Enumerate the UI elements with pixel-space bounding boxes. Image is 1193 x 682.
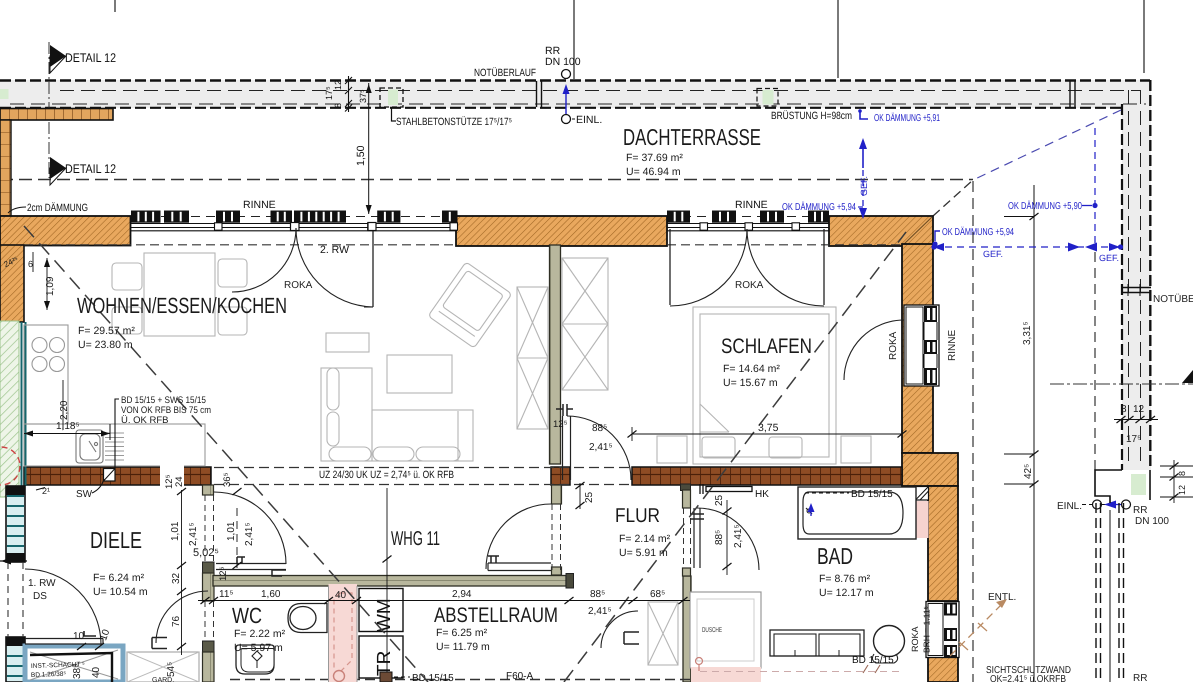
svg-text:F= 2.14 m²: F= 2.14 m² — [619, 533, 671, 545]
svg-text:76: 76 — [171, 615, 182, 627]
svg-text:8: 8 — [333, 103, 343, 108]
svg-text:WM: WM — [374, 598, 395, 632]
svg-text:BRH = 1.11⁵: BRH = 1.11⁵ — [922, 606, 932, 653]
svg-text:12⁵: 12⁵ — [553, 419, 568, 430]
svg-text:F= 29.57 m²: F= 29.57 m² — [78, 325, 135, 337]
svg-text:SCHLAFEN: SCHLAFEN — [721, 335, 812, 358]
svg-text:RINNE: RINNE — [947, 330, 958, 361]
svg-text:40: 40 — [335, 590, 347, 601]
svg-text:WHG 11: WHG 11 — [391, 528, 440, 550]
svg-text:BD 15/15: BD 15/15 — [852, 655, 894, 666]
svg-text:BD 1.26/38⁵: BD 1.26/38⁵ — [31, 671, 67, 679]
svg-text:OK DÄMMUNG +5,94: OK DÄMMUNG +5,94 — [942, 226, 1014, 238]
svg-text:ROKA: ROKA — [735, 280, 764, 291]
svg-text:1,01: 1,01 — [226, 521, 237, 541]
svg-text:F= 6.25 m²: F= 6.25 m² — [436, 627, 488, 639]
svg-text:STAHLBETONSTÜTZE 17⁵/17⁵: STAHLBETONSTÜTZE 17⁵/17⁵ — [396, 116, 512, 128]
svg-text:OK DÄMMUNG +5,90: OK DÄMMUNG +5,90 — [1008, 200, 1082, 212]
svg-text:6: 6 — [28, 259, 33, 269]
svg-text:1,18⁵: 1,18⁵ — [56, 421, 80, 432]
svg-text:HK: HK — [755, 489, 769, 500]
svg-text:25: 25 — [584, 491, 595, 503]
svg-text:U= 5.91 m: U= 5.91 m — [619, 547, 668, 559]
svg-text:DACHTERRASSE: DACHTERRASSE — [623, 124, 761, 150]
svg-text:DS: DS — [33, 591, 47, 602]
svg-text:DUSCHE: DUSCHE — [702, 627, 722, 634]
svg-text:68⁵: 68⁵ — [650, 589, 665, 600]
svg-text:DETAIL 12: DETAIL 12 — [65, 51, 116, 65]
svg-text:GEF.: GEF. — [983, 249, 1003, 259]
svg-text:Ü. OK RFB: Ü. OK RFB — [121, 415, 169, 426]
svg-text:UZ 24/30 UK UZ = 2,74⁵ ü. OK: UZ 24/30 UK UZ = 2,74⁵ ü. OK RFB — [319, 469, 454, 481]
svg-text:88⁵: 88⁵ — [592, 423, 607, 434]
svg-text:17⁵: 17⁵ — [324, 86, 334, 100]
svg-text:11⁵: 11⁵ — [219, 589, 234, 600]
svg-text:88⁵: 88⁵ — [714, 530, 725, 545]
svg-text:12⁵: 12⁵ — [218, 566, 229, 581]
svg-text:OK=2,41⁵ ü.OKRFB: OK=2,41⁵ ü.OKRFB — [990, 674, 1066, 682]
svg-text:12: 12 — [1177, 485, 1187, 495]
svg-text:F60-A: F60-A — [506, 671, 534, 682]
svg-text:12: 12 — [1133, 404, 1145, 415]
svg-text:1,09: 1,09 — [45, 276, 56, 296]
svg-text:DN 100: DN 100 — [545, 56, 581, 68]
svg-text:DN 100: DN 100 — [1135, 516, 1169, 527]
svg-text:8: 8 — [1121, 404, 1127, 415]
svg-text:3,31⁵: 3,31⁵ — [1022, 321, 1033, 345]
svg-text:37⁵: 37⁵ — [358, 89, 368, 103]
svg-text:RINNE: RINNE — [735, 199, 768, 211]
svg-text:U= 12.17 m: U= 12.17 m — [819, 587, 874, 599]
svg-text:10: 10 — [73, 631, 85, 642]
svg-text:U= 5.97 m: U= 5.97 m — [234, 642, 283, 654]
svg-text:1,01: 1,01 — [170, 521, 181, 541]
svg-text:F= 2.22 m²: F= 2.22 m² — [234, 628, 286, 640]
svg-text:WOHNEN/ESSEN/KOCHEN: WOHNEN/ESSEN/KOCHEN — [77, 293, 287, 318]
svg-text:ABSTELLRAUM: ABSTELLRAUM — [434, 604, 558, 627]
svg-text:12: 12 — [333, 80, 343, 90]
svg-text:OK DÄMMUNG +5,91: OK DÄMMUNG +5,91 — [874, 112, 940, 124]
svg-text:U= 23.80 m: U= 23.80 m — [78, 339, 133, 351]
svg-text:GEF.: GEF. — [859, 176, 869, 196]
svg-text:1. RW: 1. RW — [28, 578, 56, 589]
svg-text:2,20: 2,20 — [59, 400, 70, 420]
svg-text:2,41⁵: 2,41⁵ — [588, 606, 612, 617]
svg-text:2,94: 2,94 — [452, 589, 472, 600]
svg-text:DIELE: DIELE — [90, 527, 142, 553]
svg-text:2. RW: 2. RW — [320, 244, 349, 256]
svg-text:25: 25 — [714, 494, 725, 506]
svg-text:EINL.: EINL. — [1057, 501, 1082, 512]
svg-text:1,50: 1,50 — [355, 145, 367, 166]
svg-text:RR: RR — [1133, 673, 1147, 682]
svg-text:88⁵: 88⁵ — [590, 589, 605, 600]
svg-text:BD 15/15: BD 15/15 — [851, 489, 893, 500]
svg-text:U= 11.79 m: U= 11.79 m — [436, 641, 490, 653]
svg-text:3,75: 3,75 — [758, 422, 779, 434]
svg-text:42⁵: 42⁵ — [1023, 464, 1034, 479]
svg-text:40: 40 — [91, 666, 102, 678]
svg-text:RR: RR — [1133, 505, 1147, 516]
svg-text:OK DÄMMUNG +5,94: OK DÄMMUNG +5,94 — [782, 201, 856, 213]
svg-text:17⁵: 17⁵ — [1126, 434, 1141, 445]
svg-text:U= 15.67 m: U= 15.67 m — [723, 377, 778, 389]
svg-text:EINL.: EINL. — [576, 114, 602, 126]
svg-text:38⁵: 38⁵ — [72, 664, 83, 679]
svg-text:24: 24 — [174, 476, 185, 487]
svg-text:SW: SW — [76, 489, 93, 500]
svg-text:ROKA: ROKA — [888, 331, 899, 360]
svg-text:1,60: 1,60 — [261, 589, 281, 600]
svg-text:2,41⁵: 2,41⁵ — [244, 522, 255, 546]
svg-text:ROKA: ROKA — [284, 280, 313, 291]
svg-text:FLUR: FLUR — [615, 505, 660, 527]
svg-text:2,41⁵: 2,41⁵ — [733, 524, 744, 548]
svg-text:BRÜSTUNG H=98cm: BRÜSTUNG H=98cm — [771, 110, 852, 122]
svg-text:F= 8.76 m²: F= 8.76 m² — [819, 573, 871, 585]
svg-text:54⁵: 54⁵ — [166, 662, 177, 677]
svg-text:RINNE: RINNE — [243, 199, 276, 211]
svg-text:32: 32 — [171, 572, 182, 584]
svg-text:U= 10.54 m: U= 10.54 m — [93, 586, 148, 598]
svg-text:F= 6.24 m²: F= 6.24 m² — [93, 572, 145, 584]
svg-text:2,41⁵: 2,41⁵ — [589, 442, 613, 453]
svg-text:2,41⁵: 2,41⁵ — [188, 522, 199, 546]
svg-text:U= 46.94 m: U= 46.94 m — [626, 166, 681, 178]
svg-text:DETAIL 12: DETAIL 12 — [65, 162, 116, 176]
svg-text:ROKA: ROKA — [910, 626, 920, 652]
svg-text:5,02⁵: 5,02⁵ — [193, 547, 219, 559]
svg-text:F= 37.69 m²: F= 37.69 m² — [626, 152, 683, 164]
svg-text:NOTÜBERLAUF: NOTÜBERLAUF — [474, 67, 536, 79]
svg-text:GEF.: GEF. — [1099, 253, 1119, 263]
svg-text:BD 15/15: BD 15/15 — [412, 673, 454, 682]
svg-text:BAD: BAD — [817, 543, 853, 569]
svg-text:36⁵: 36⁵ — [222, 472, 233, 487]
svg-text:10: 10 — [98, 628, 112, 643]
svg-text:F= 14.64 m²: F= 14.64 m² — [723, 363, 780, 375]
svg-text:WC: WC — [232, 603, 262, 628]
svg-text:NOTÜBER: NOTÜBER — [1153, 293, 1193, 305]
svg-text:8: 8 — [1177, 471, 1187, 476]
svg-text:2cm DÄMMUNG: 2cm DÄMMUNG — [27, 202, 88, 214]
